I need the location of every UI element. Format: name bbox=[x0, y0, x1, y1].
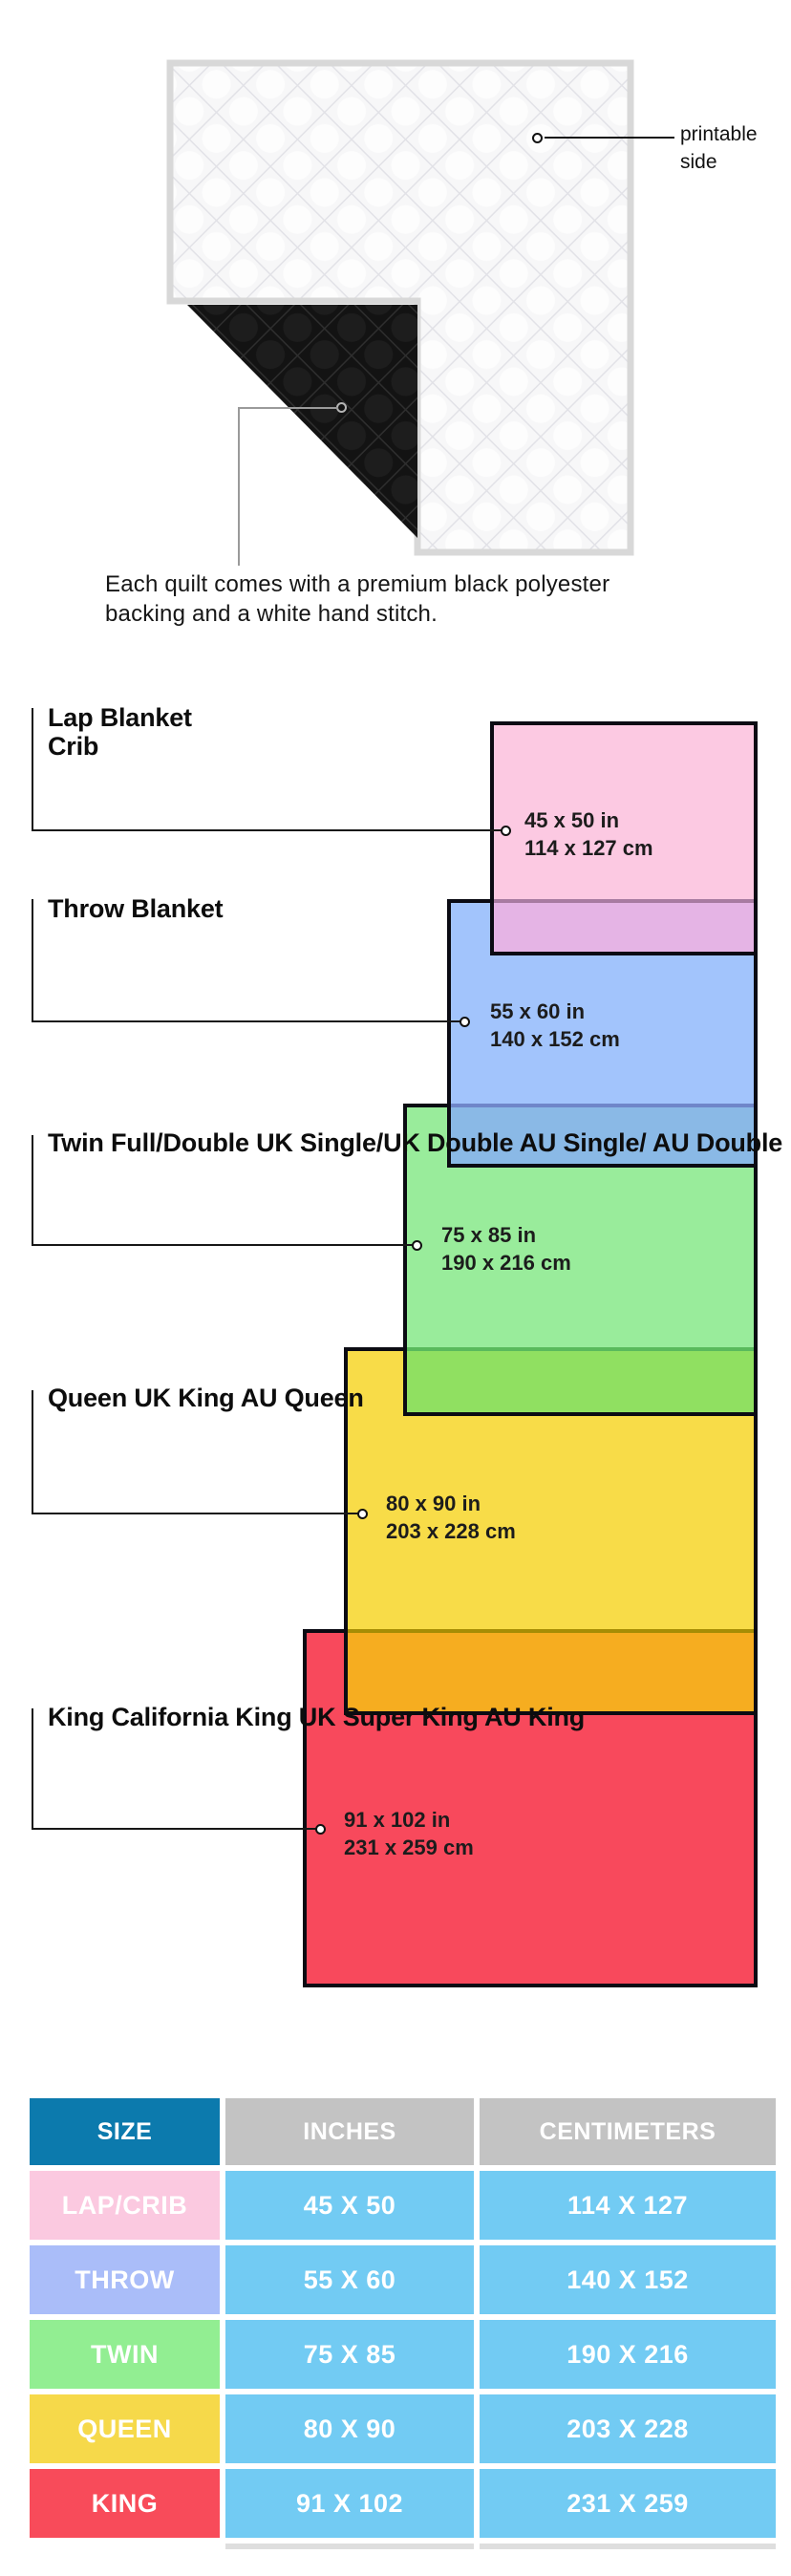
queen-leader-line bbox=[32, 1513, 358, 1514]
table-bottom-strip-cm bbox=[480, 2544, 776, 2549]
row-centimeters: 190 X 216 bbox=[480, 2320, 776, 2389]
quilt-image bbox=[162, 57, 640, 559]
twin-bracket-line bbox=[32, 1135, 33, 1245]
twin-dimensions: 75 x 85 in 190 x 216 cm bbox=[441, 1221, 571, 1277]
king-leader-line bbox=[32, 1828, 316, 1830]
throw-marker-icon bbox=[460, 1017, 470, 1027]
queen-bracket-line bbox=[32, 1390, 33, 1513]
queen-king-overlap bbox=[348, 1633, 754, 1711]
lap-leader-line bbox=[32, 829, 502, 831]
lap-marker-icon bbox=[501, 826, 511, 836]
queen-label: Queen UK King AU Queen bbox=[48, 1384, 364, 1413]
table-header-inches: INCHES bbox=[225, 2098, 474, 2165]
row-label: KING bbox=[30, 2469, 220, 2538]
table-bottom-strip-inches bbox=[225, 2544, 474, 2549]
row-inches: 80 X 90 bbox=[225, 2394, 474, 2463]
king-marker-icon bbox=[315, 1824, 326, 1835]
row-centimeters: 231 X 259 bbox=[480, 2469, 776, 2538]
row-centimeters: 203 X 228 bbox=[480, 2394, 776, 2463]
table-row-throw: THROW 55 X 60 140 X 152 bbox=[30, 2245, 776, 2314]
twin-label: Twin Full/Double UK Single/UK Double AU … bbox=[48, 1128, 782, 1157]
lap-bracket-line bbox=[32, 708, 33, 831]
lap-crib-label: Lap Blanket Crib bbox=[48, 703, 192, 761]
table-row-queen: QUEEN 80 X 90 203 X 228 bbox=[30, 2394, 776, 2463]
throw-label: Throw Blanket bbox=[48, 894, 223, 923]
lap-throw-overlap bbox=[494, 903, 754, 952]
twin-leader-line bbox=[32, 1244, 413, 1246]
throw-bracket-line bbox=[32, 899, 33, 1022]
row-label: THROW bbox=[30, 2245, 220, 2314]
row-label: QUEEN bbox=[30, 2394, 220, 2463]
twin-marker-icon bbox=[412, 1240, 422, 1251]
row-centimeters: 114 X 127 bbox=[480, 2171, 776, 2240]
row-label: TWIN bbox=[30, 2320, 220, 2389]
row-inches: 55 X 60 bbox=[225, 2245, 474, 2314]
row-label: LAP/CRIB bbox=[30, 2171, 220, 2240]
row-centimeters: 140 X 152 bbox=[480, 2245, 776, 2314]
backing-leader-line-h bbox=[239, 407, 338, 409]
queen-marker-icon bbox=[357, 1509, 368, 1519]
king-dimensions: 91 x 102 in 231 x 259 cm bbox=[344, 1806, 474, 1861]
throw-leader-line bbox=[32, 1020, 460, 1022]
row-inches: 75 X 85 bbox=[225, 2320, 474, 2389]
table-header-size: SIZE bbox=[30, 2098, 220, 2165]
printable-side-marker-icon bbox=[532, 133, 543, 143]
table-row-twin: TWIN 75 X 85 190 X 216 bbox=[30, 2320, 776, 2389]
table-header-row: SIZE INCHES CENTIMETERS bbox=[30, 2098, 776, 2165]
throw-dimensions: 55 x 60 in 140 x 152 cm bbox=[490, 998, 620, 1053]
printable-side-leader-line bbox=[545, 137, 674, 139]
printable-side-label: printable side bbox=[680, 120, 758, 176]
quilt-black-backing-fold bbox=[187, 305, 417, 538]
backing-leader-line-v bbox=[238, 407, 240, 566]
king-label: King California King UK Super King AU Ki… bbox=[48, 1703, 585, 1732]
row-inches: 91 X 102 bbox=[225, 2469, 474, 2538]
table-row-lap-crib: LAP/CRIB 45 X 50 114 X 127 bbox=[30, 2171, 776, 2240]
quilt-caption: Each quilt comes with a premium black po… bbox=[105, 569, 716, 629]
table-row-king: KING 91 X 102 231 X 259 bbox=[30, 2469, 776, 2538]
table-header-centimeters: CENTIMETERS bbox=[480, 2098, 776, 2165]
row-inches: 45 X 50 bbox=[225, 2171, 474, 2240]
queen-dimensions: 80 x 90 in 203 x 228 cm bbox=[386, 1490, 516, 1545]
king-bracket-line bbox=[32, 1708, 33, 1829]
quilt-size-chart: printable side Each quilt comes with a p… bbox=[0, 0, 791, 2576]
lap-dimensions: 45 x 50 in 114 x 127 cm bbox=[524, 806, 653, 862]
twin-queen-overlap bbox=[407, 1351, 754, 1412]
